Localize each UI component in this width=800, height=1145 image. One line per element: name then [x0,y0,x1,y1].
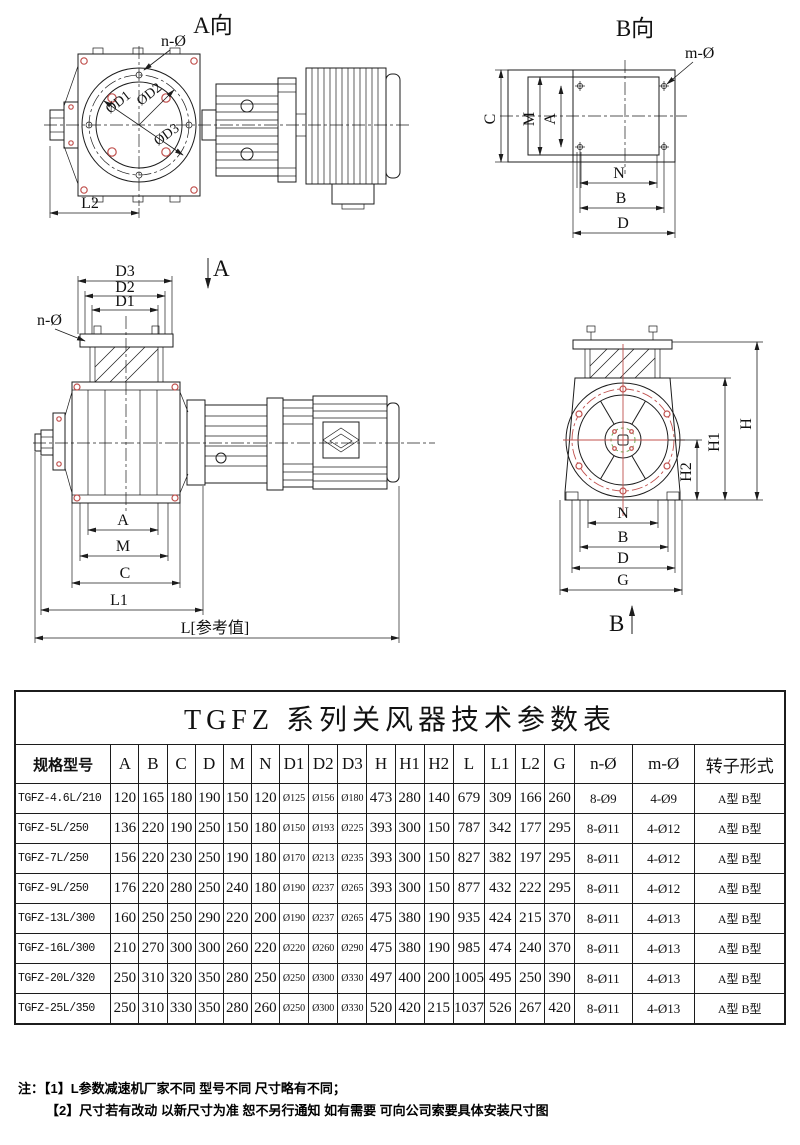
table-cell: 4-Ø13 [632,934,694,964]
table-cell: Ø220 [279,934,308,964]
table-cell: TGFZ-4.6L/210 [15,784,111,814]
table-cell: 166 [516,784,545,814]
table-cell: 260 [251,994,279,1025]
table-title: TGFZ 系列关风器技术参数表 [15,691,785,745]
table-cell: 300 [195,934,223,964]
column-header: N [251,745,279,784]
table-cell: 190 [223,844,251,874]
column-header: D2 [309,745,338,784]
table-cell: 8-Ø11 [574,814,632,844]
table-cell: 220 [251,934,279,964]
table-cell: Ø250 [279,994,308,1025]
table-cell: 150 [223,784,251,814]
table-cell: 393 [367,874,395,904]
table-cell: 220 [139,874,167,904]
table-cell: TGFZ-9L/250 [15,874,111,904]
table-cell: 220 [139,814,167,844]
dims-horizontal: N B D [573,152,675,238]
section-arrow-a: A [208,256,230,288]
table-cell: 475 [367,934,395,964]
table-cell: 4-Ø9 [632,784,694,814]
table-cell: 370 [545,904,574,934]
column-header: H1 [395,745,424,784]
table-cell: 300 [395,844,424,874]
dims-vertical: C M A [482,70,561,162]
table-cell: 4-Ø13 [632,904,694,934]
table-cell: 150 [424,844,453,874]
column-header: n-Ø [574,745,632,784]
table-cell: A型 B型 [695,844,785,874]
dim-od1: ØD1 [103,89,134,118]
dim-l2-group: L2 [50,146,139,218]
end-inlet-flange [573,326,672,378]
dims-right: H2 H1 H [668,342,763,500]
table-cell: 250 [139,904,167,934]
table-cell: 424 [485,904,516,934]
note-prefix: 注： [18,1081,44,1096]
table-cell: 220 [223,904,251,934]
dim-l2: L2 [81,195,99,212]
table-cell: 240 [223,874,251,904]
section-label-a: A [213,256,230,281]
table-cell: 165 [139,784,167,814]
page: A向 ØD1 ØD2 ØD3 n-Ø [0,0,800,1145]
table-cell: 420 [395,994,424,1025]
table-cell: Ø290 [338,934,367,964]
table-cell: 180 [251,814,279,844]
dim-h2: H2 [678,462,695,482]
table-cell: TGFZ-20L/320 [15,964,111,994]
table-cell: A型 B型 [695,964,785,994]
table-cell: 250 [516,964,545,994]
view-a-title: A向 [193,13,233,38]
section-label-b: B [609,611,624,636]
table-cell: 180 [251,874,279,904]
table-cell: Ø260 [309,934,338,964]
table-cell: 350 [195,964,223,994]
dim-g: G [617,572,629,589]
table-cell: 320 [167,964,195,994]
column-header: L [453,745,484,784]
dim-d3: D3 [115,263,135,280]
table-row: TGFZ-13L/300160250250290220200Ø190Ø237Ø2… [15,904,785,934]
table-cell: 420 [545,994,574,1025]
table-row: TGFZ-9L/250176220280250240180Ø190Ø237Ø26… [15,874,785,904]
table-cell: 520 [367,994,395,1025]
table-cell: 985 [453,934,484,964]
table-cell: 177 [516,814,545,844]
column-header: 规格型号 [15,745,111,784]
table-cell: 250 [195,844,223,874]
table-cell: 300 [395,814,424,844]
column-header: m-Ø [632,745,694,784]
inlet-flange [80,326,173,382]
table-cell: Ø265 [338,874,367,904]
table-cell: 295 [545,844,574,874]
table-cell: 432 [485,874,516,904]
table-cell: 295 [545,814,574,844]
dim-d: D [617,215,629,232]
note-line-2: 【2】尺寸若有改动 以新尺寸为准 恕不另行通知 如有需要 可向公司索要具体安装尺… [46,1100,778,1122]
column-header: L1 [485,745,516,784]
table-cell: 342 [485,814,516,844]
table-cell: 230 [167,844,195,874]
table-cell: 8-Ø11 [574,844,632,874]
table-header-row: 规格型号ABCDMND1D2D3HH1H2LL1L2Gn-Øm-Ø转子形式 [15,745,785,784]
column-header: A [111,745,139,784]
table-cell: 150 [424,874,453,904]
table-cell: 136 [111,814,139,844]
table-cell: 4-Ø12 [632,844,694,874]
table-row: TGFZ-5L/250136220190250150180Ø150Ø193Ø22… [15,814,785,844]
table-cell: 877 [453,874,484,904]
table-cell: Ø330 [338,964,367,994]
table-cell: 250 [251,964,279,994]
table-cell: Ø237 [309,904,338,934]
table-cell: TGFZ-25L/350 [15,994,111,1025]
table-cell: 280 [223,994,251,1025]
table-row: TGFZ-25L/350250310330350280260Ø250Ø300Ø3… [15,994,785,1025]
table-cell: A型 B型 [695,934,785,964]
table-cell: 150 [223,814,251,844]
table-cell: Ø265 [338,904,367,934]
table-cell: 350 [195,994,223,1025]
table-row: TGFZ-4.6L/210120165180190150120Ø125Ø156Ø… [15,784,785,814]
table-cell: 160 [111,904,139,934]
notes: 注：【1】L参数减速机厂家不同 型号不同 尺寸略有不同； 【2】尺寸若有改动 以… [18,1078,778,1122]
table-cell: 495 [485,964,516,994]
section-arrow-b: B [609,606,632,636]
dim-n: N [613,165,625,182]
table-cell: 200 [424,964,453,994]
dim-a: A [542,113,559,125]
drawing-end-view: H2 H1 H N B D G B [535,316,800,651]
table-cell: 220 [139,844,167,874]
dim-l1: L1 [110,592,128,609]
table-cell: 8-Ø11 [574,904,632,934]
table-cell: 180 [251,844,279,874]
column-header: D3 [338,745,367,784]
table-cell: 176 [111,874,139,904]
table-cell: Ø300 [309,994,338,1025]
diameter-callouts: ØD1 ØD2 ØD3 n-Ø [103,33,186,155]
table-cell: 827 [453,844,484,874]
table-cell: 474 [485,934,516,964]
table-cell: Ø150 [279,814,308,844]
column-header: C [167,745,195,784]
dim-m-front: M [116,538,130,555]
table-cell: Ø300 [309,964,338,994]
table-cell: 197 [516,844,545,874]
column-header: D1 [279,745,308,784]
column-header: D [195,745,223,784]
table-cell: 8-Ø11 [574,994,632,1025]
column-header: B [139,745,167,784]
table-cell: Ø156 [309,784,338,814]
table-cell: 270 [139,934,167,964]
table-cell: 180 [167,784,195,814]
dim-l-ref: L[参考值] [181,619,249,637]
parameters-table: TGFZ 系列关风器技术参数表 规格型号ABCDMND1D2D3HH1H2LL1… [14,690,786,1025]
dim-b-end: B [618,529,629,546]
drawing-view-a: A向 ØD1 ØD2 ØD3 n-Ø [20,6,420,250]
table-cell: 380 [395,934,424,964]
valve-body [65,382,188,503]
table-cell: 393 [367,844,395,874]
table-cell: 240 [516,934,545,964]
table-cell: 280 [223,964,251,994]
table-cell: 190 [167,814,195,844]
table-cell: Ø125 [279,784,308,814]
table-cell: TGFZ-7L/250 [15,844,111,874]
dim-d1: D1 [115,293,135,310]
dims-top: D3 D2 D1 [78,263,172,334]
table-cell: 526 [485,994,516,1025]
table-cell: 330 [167,994,195,1025]
table-cell: 140 [424,784,453,814]
table-cell: Ø237 [309,874,338,904]
table-cell: 473 [367,784,395,814]
table-cell: A型 B型 [695,874,785,904]
table-cell: 120 [251,784,279,814]
view-b-title: B向 [616,16,654,41]
table-cell: TGFZ-13L/300 [15,904,111,934]
table-cell: 200 [251,904,279,934]
dim-c: C [482,114,499,125]
table-cell: Ø180 [338,784,367,814]
table-cell: 393 [367,814,395,844]
table-cell: 280 [167,874,195,904]
table-cell: 390 [545,964,574,994]
column-header: G [545,745,574,784]
table-cell: TGFZ-16L/300 [15,934,111,964]
table-cell: TGFZ-5L/250 [15,814,111,844]
table-cell: A型 B型 [695,994,785,1025]
table-cell: 267 [516,994,545,1025]
column-header: M [223,745,251,784]
table-cell: Ø170 [279,844,308,874]
table-cell: 150 [424,814,453,844]
table-cell: 4-Ø12 [632,874,694,904]
drawing-view-b: B向 m-Ø C M A [455,6,800,258]
shaft-front [35,413,65,470]
table-cell: Ø193 [309,814,338,844]
table-cell: 8-Ø11 [574,934,632,964]
table-cell: 400 [395,964,424,994]
drawing-front-view: D3 D2 D1 n-Ø A [15,250,445,655]
table-cell: 475 [367,904,395,934]
column-header: H2 [424,745,453,784]
table-cell: 250 [111,964,139,994]
dim-n-end: N [617,505,629,522]
table-cell: 4-Ø13 [632,964,694,994]
table-cell: Ø225 [338,814,367,844]
table-cell: 222 [516,874,545,904]
table-cell: 215 [516,904,545,934]
table-row: TGFZ-7L/250156220230250190180Ø170Ø213Ø23… [15,844,785,874]
table-row: TGFZ-16L/300210270300300260220Ø220Ø260Ø2… [15,934,785,964]
table-cell: 250 [195,874,223,904]
table-cell: 8-Ø11 [574,874,632,904]
table-cell: 250 [195,814,223,844]
table-cell: 260 [545,784,574,814]
dim-d-end: D [617,550,629,567]
table-cell: 300 [395,874,424,904]
table-cell: 215 [424,994,453,1025]
dim-a-front: A [117,512,129,529]
table-cell: 190 [195,784,223,814]
dim-n-hole-front: n-Ø [37,312,62,329]
table-cell: 120 [111,784,139,814]
table-cell: Ø213 [309,844,338,874]
table-cell: 280 [395,784,424,814]
dim-h: H [738,418,755,430]
table-cell: 497 [367,964,395,994]
dim-b: B [616,190,627,207]
table-cell: 310 [139,964,167,994]
table-cell: 370 [545,934,574,964]
table-row: TGFZ-20L/320250310320350280250Ø250Ø300Ø3… [15,964,785,994]
table-cell: Ø250 [279,964,308,994]
table-cell: 380 [395,904,424,934]
column-header: L2 [516,745,545,784]
table-cell: A型 B型 [695,904,785,934]
table-cell: 8-Ø11 [574,964,632,994]
table-cell: 295 [545,874,574,904]
table-cell: A型 B型 [695,814,785,844]
motor-logo [323,428,359,452]
dim-m-hole: m-Ø [685,45,714,62]
table-cell: 382 [485,844,516,874]
end-body [563,344,685,516]
table-cell: 1005 [453,964,484,994]
table-cell: 290 [195,904,223,934]
table-cell: 4-Ø12 [632,814,694,844]
gearmotor-top [202,68,400,209]
table-cell: Ø330 [338,994,367,1025]
dim-n-hole: n-Ø [161,33,186,50]
dims-bottom-end: N B D G [560,500,682,595]
dim-m: M [521,112,538,126]
table-cell: 679 [453,784,484,814]
table-cell: 1037 [453,994,484,1025]
column-header: H [367,745,395,784]
table-cell: 210 [111,934,139,964]
dim-c-front: C [120,565,131,582]
table-cell: 250 [167,904,195,934]
table-cell: 8-Ø9 [574,784,632,814]
table-cell: 260 [223,934,251,964]
table-cell: Ø235 [338,844,367,874]
table-cell: 250 [111,994,139,1025]
dim-h1: H1 [706,432,723,452]
table-cell: 4-Ø13 [632,994,694,1025]
table-cell: Ø190 [279,874,308,904]
table-cell: 309 [485,784,516,814]
table-cell: 935 [453,904,484,934]
column-header: 转子形式 [695,745,785,784]
table-cell: A型 B型 [695,784,785,814]
table-cell: 300 [167,934,195,964]
table-cell: 156 [111,844,139,874]
table-cell: Ø190 [279,904,308,934]
note-line-1: 注：【1】L参数减速机厂家不同 型号不同 尺寸略有不同； [18,1078,778,1100]
table-cell: 787 [453,814,484,844]
table-cell: 310 [139,994,167,1025]
table-cell: 190 [424,934,453,964]
table-cell: 190 [424,904,453,934]
